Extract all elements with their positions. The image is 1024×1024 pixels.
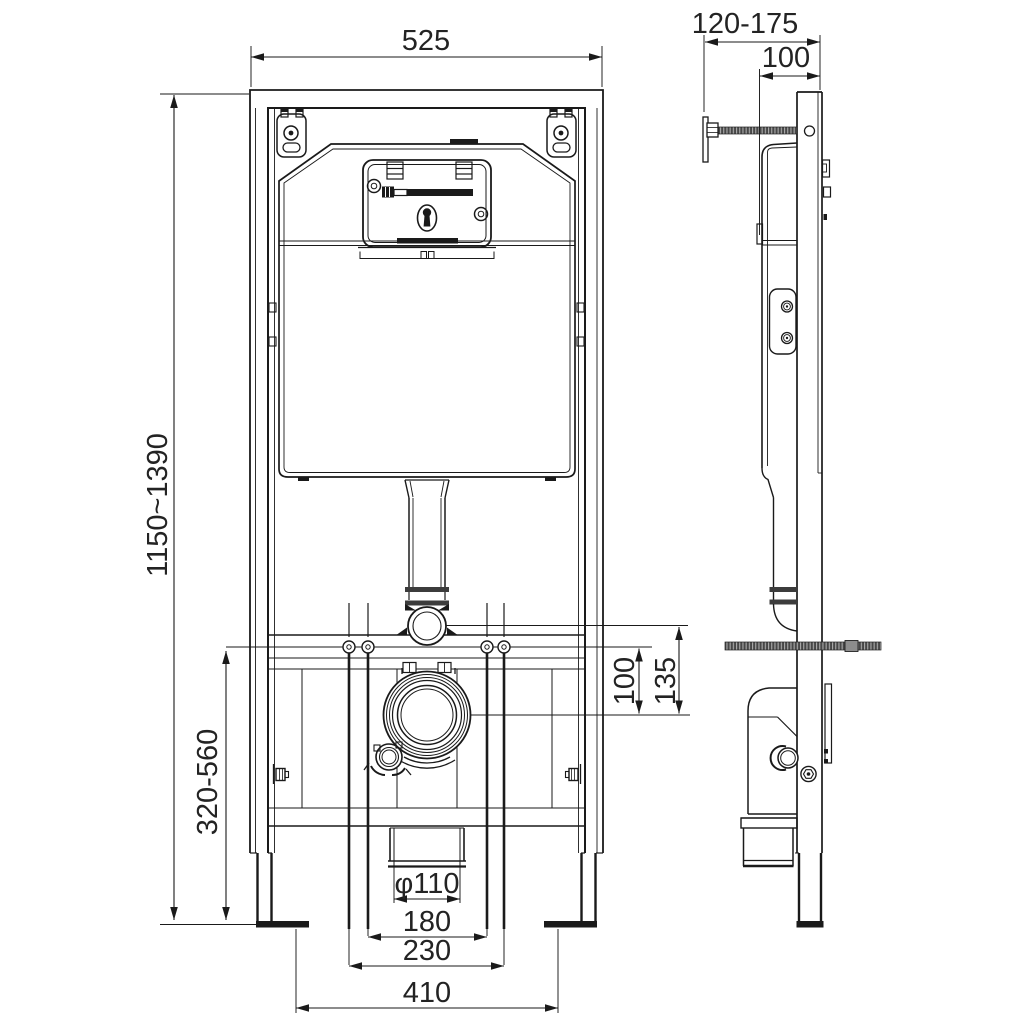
dim-label-flange-to-drain: 135 [650, 657, 682, 705]
dimension-outlet-diameter: φ110 [394, 867, 460, 903]
dim-label-frame-depth: 100 [762, 42, 810, 74]
side-fix-bolt [801, 766, 816, 781]
wall-anchor-rod [703, 117, 797, 162]
dimension-bottom-range: 320-560 [192, 651, 226, 920]
outlet-channel [388, 828, 466, 867]
dim-label-bottom-range: 320-560 [192, 729, 224, 835]
dimension-width-525: 525 [251, 25, 602, 87]
side-drain-bend [741, 684, 832, 866]
dim-label-height-range: 1150~1390 [142, 433, 174, 577]
side-frame-foot [795, 853, 824, 928]
frame-foot-right [544, 853, 603, 928]
panel-screw-top [782, 301, 793, 312]
dimension-bolt-to-drain: 100 [609, 649, 641, 714]
dimension-frame-depth: 100 [760, 42, 821, 235]
side-fixing-rod [725, 641, 881, 652]
technical-drawing-canvas: 525 1150~1390 320-560 100 135 φ110 [0, 0, 1024, 1024]
dim-label-feet-spacing: 410 [403, 977, 451, 1009]
side-view-drawing: 120-175 100 [692, 8, 881, 928]
frame-foot-left [250, 853, 309, 928]
dim-label-bolt-spacing-outer: 230 [403, 935, 451, 967]
dim-label-outlet-diameter: φ110 [394, 868, 459, 900]
dim-label-bolt-spacing-inner: 180 [403, 906, 451, 938]
mounting-bracket-left [277, 109, 306, 157]
mounting-bracket-right [547, 109, 576, 157]
dim-label-width: 525 [402, 25, 450, 57]
side-flush-pipe [770, 498, 798, 632]
dimension-bolt-spacing-inner: 180 [368, 906, 487, 938]
dimension-bolt-spacing-outer: 230 [349, 935, 504, 967]
side-cistern [757, 143, 797, 498]
panel-screw-bottom [782, 333, 793, 344]
flush-unit-window [358, 160, 496, 259]
dimension-flange-to-drain: 135 [650, 627, 682, 714]
keyhole [418, 205, 437, 231]
front-view-drawing: 525 1150~1390 320-560 100 135 φ110 [142, 25, 690, 1013]
flush-pipe [405, 480, 449, 645]
side-bolt-left [274, 764, 289, 784]
dim-label-wall-distance: 120-175 [692, 8, 798, 40]
wc-frame-drawing: 525 1150~1390 320-560 100 135 φ110 [0, 0, 1024, 1024]
dim-label-bolt-to-drain: 100 [609, 657, 641, 705]
push-rod [382, 187, 473, 198]
